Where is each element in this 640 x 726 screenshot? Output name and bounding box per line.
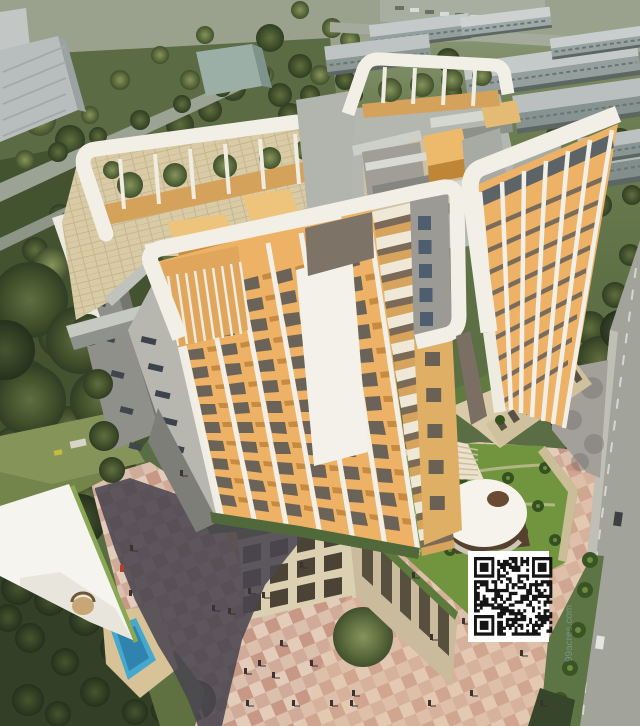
svg-text:99acres.com: 99acres.com — [564, 605, 575, 662]
